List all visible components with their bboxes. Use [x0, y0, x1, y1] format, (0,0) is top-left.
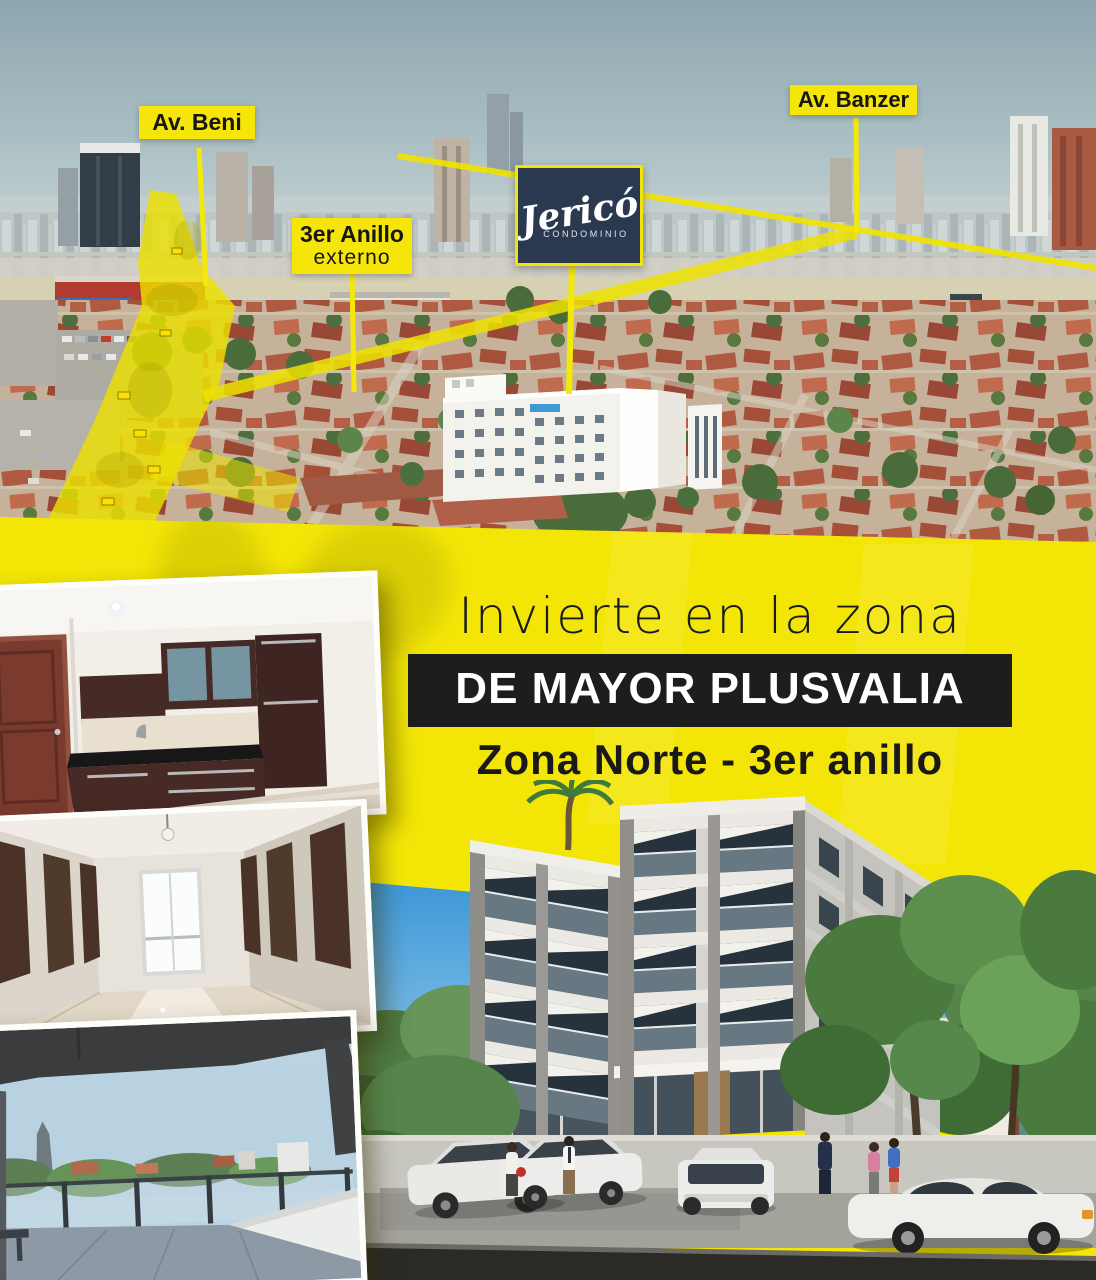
- building-render: [320, 780, 1096, 1280]
- hallway-scene: [0, 805, 371, 1042]
- pointer-3er-anillo: [352, 272, 354, 392]
- map-label-text: Av. Beni: [152, 109, 241, 136]
- kitchen-scene: [0, 577, 380, 824]
- headline-line3: Zona Norte - 3er anillo: [408, 736, 1012, 784]
- map-label-text: 3er Anillo: [300, 223, 404, 247]
- kitchen-photo: [0, 570, 387, 829]
- ad-poster: Av. Beni Av. Banzer 3er Anillo externo J…: [0, 0, 1096, 1280]
- pointer-logo-building: [569, 262, 572, 394]
- balcony-scene: [0, 1016, 361, 1280]
- headline-line2: DE MAYOR PLUSVALIA: [408, 654, 1012, 727]
- wall-top: [320, 1135, 1096, 1141]
- map-label-subtext: externo: [313, 247, 390, 269]
- aerial-photo: [0, 0, 1096, 545]
- promo-section: Invierte en la zona DE MAYOR PLUSVALIA Z…: [0, 504, 1096, 1280]
- map-label-av-banzer: Av. Banzer: [790, 85, 917, 115]
- headline-line1: Invierte en la zona: [408, 587, 1012, 645]
- map-label-av-beni: Av. Beni: [139, 106, 255, 139]
- building-tower: [614, 796, 810, 1140]
- promo-headline: Invierte en la zona DE MAYOR PLUSVALIA Z…: [408, 587, 1012, 784]
- balcony-photo: [0, 1010, 368, 1280]
- pointer-av-banzer: [856, 118, 857, 232]
- map-label-text: Av. Banzer: [798, 87, 909, 113]
- aerial-map-section: Av. Beni Av. Banzer 3er Anillo externo J…: [0, 0, 1096, 545]
- palm-tree: [528, 780, 612, 850]
- jerico-logo: Jericó CONDOMINIO: [515, 165, 643, 266]
- headline-line2-text: DE MAYOR PLUSVALIA: [455, 664, 964, 713]
- map-label-3er-anillo: 3er Anillo externo: [292, 218, 412, 274]
